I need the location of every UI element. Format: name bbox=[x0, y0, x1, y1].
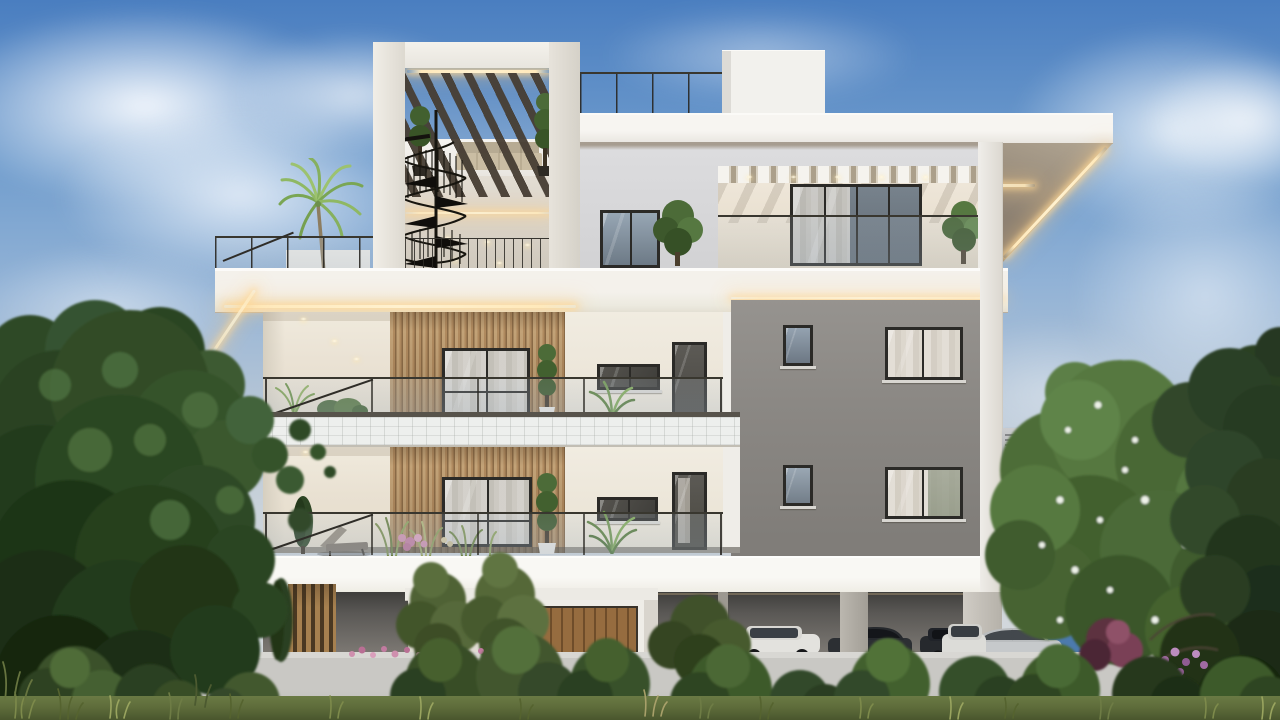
scene: 3D architectural render of a modern thre… bbox=[0, 0, 1280, 720]
grass-strip bbox=[0, 696, 1280, 720]
vegetation bbox=[0, 0, 1280, 720]
